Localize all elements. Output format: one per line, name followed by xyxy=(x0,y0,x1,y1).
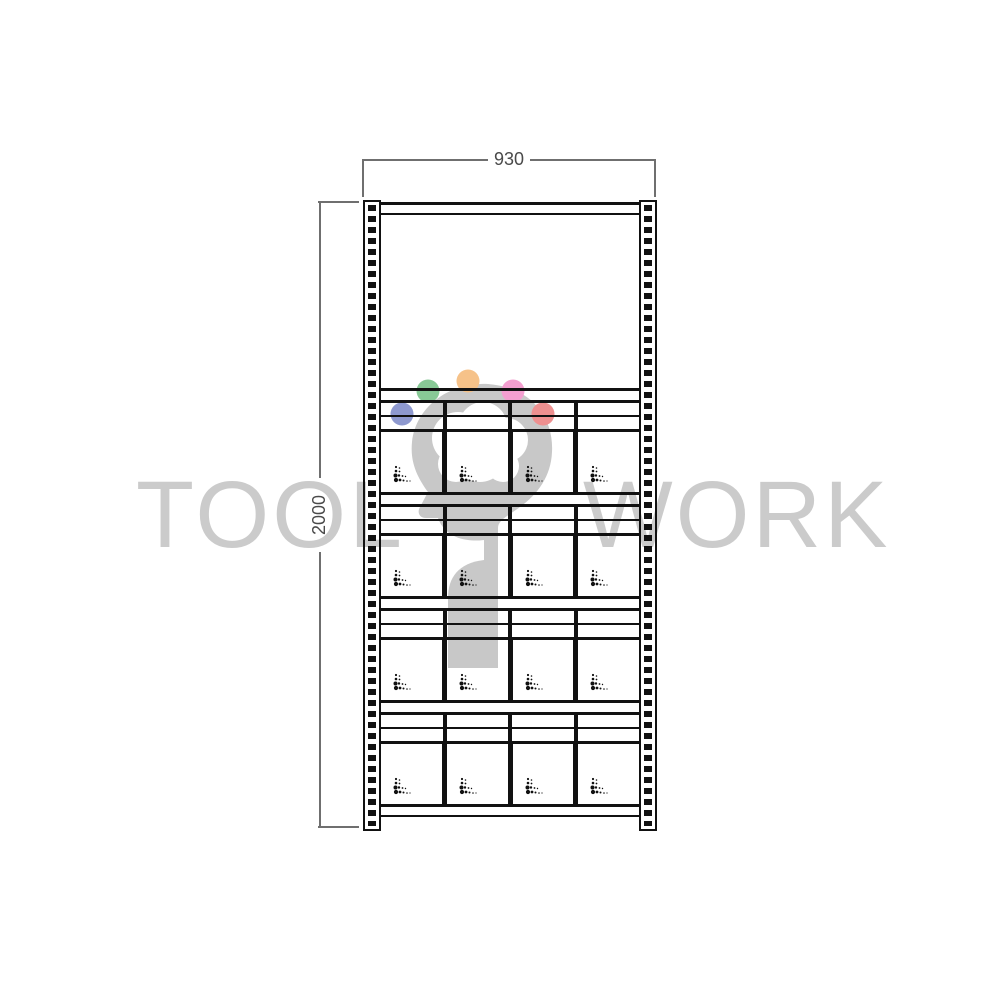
rail-cell xyxy=(578,507,640,519)
scatter-dots-mark-icon xyxy=(393,673,415,691)
rail-cell xyxy=(447,403,509,415)
storage-bin xyxy=(578,536,639,596)
scatter-dots-mark-icon xyxy=(525,777,547,795)
storage-bin xyxy=(381,640,442,700)
rail-row xyxy=(381,729,639,741)
bins-row xyxy=(381,640,639,700)
rail-cell xyxy=(381,611,443,623)
rail-cell xyxy=(381,403,443,415)
upright-holes-pattern xyxy=(368,205,376,826)
rail-cell xyxy=(578,715,640,727)
storage-bin xyxy=(447,536,508,596)
rail-cell xyxy=(447,715,509,727)
storage-bin xyxy=(578,640,639,700)
width-extension-line-right xyxy=(654,159,656,197)
rail-cell xyxy=(512,625,574,637)
height-dimension-line-bottom-segment xyxy=(319,552,321,828)
rail-strip xyxy=(381,715,639,744)
storage-bin xyxy=(513,536,574,596)
storage-bin xyxy=(447,744,508,804)
rail-row xyxy=(381,403,639,415)
upright-holes-pattern xyxy=(644,205,652,826)
perforated-upright-right xyxy=(639,200,657,831)
shelf-beam xyxy=(381,596,639,611)
scatter-dots-mark-icon xyxy=(393,777,415,795)
rail-row xyxy=(381,521,639,533)
storage-bin xyxy=(513,744,574,804)
height-dimension-label: 2000 xyxy=(310,495,328,535)
rail-cell xyxy=(381,521,443,533)
storage-bin xyxy=(447,432,508,492)
rail-cell xyxy=(447,521,509,533)
rail-cell xyxy=(512,403,574,415)
rail-cell xyxy=(447,507,509,519)
storage-bin xyxy=(578,432,639,492)
rail-row xyxy=(381,417,639,429)
shelf-beam xyxy=(381,388,639,403)
storage-bin xyxy=(513,640,574,700)
shelving-unit xyxy=(363,200,657,831)
scatter-dots-mark-icon xyxy=(590,673,612,691)
rail-cell xyxy=(512,729,574,741)
rail-strip xyxy=(381,403,639,432)
rail-cell xyxy=(512,715,574,727)
scatter-dots-mark-icon xyxy=(393,465,415,483)
bins-row xyxy=(381,432,639,492)
scatter-dots-mark-icon xyxy=(459,673,481,691)
rail-cell xyxy=(381,507,443,519)
storage-bin xyxy=(447,640,508,700)
width-dimension-line-left-segment xyxy=(363,159,488,161)
scatter-dots-mark-icon xyxy=(459,465,481,483)
scatter-dots-mark-icon xyxy=(525,673,547,691)
shelf-beam xyxy=(381,492,639,507)
rail-cell xyxy=(512,521,574,533)
unit-interior xyxy=(381,200,639,818)
rail-cell xyxy=(578,611,640,623)
scatter-dots-mark-icon xyxy=(525,465,547,483)
perforated-upright-left xyxy=(363,200,381,831)
bins-row xyxy=(381,744,639,804)
rail-cell xyxy=(381,715,443,727)
rail-cell xyxy=(381,417,443,429)
scatter-dots-mark-icon xyxy=(590,569,612,587)
rail-cell xyxy=(578,417,640,429)
open-compartment xyxy=(381,215,639,388)
rail-cell xyxy=(381,625,443,637)
rail-strip xyxy=(381,611,639,640)
height-dimension-line-top-segment xyxy=(319,202,321,478)
rail-row xyxy=(381,611,639,623)
storage-bin xyxy=(381,432,442,492)
rail-cell xyxy=(578,729,640,741)
rail-row xyxy=(381,507,639,519)
storage-bin xyxy=(578,744,639,804)
scatter-dots-mark-icon xyxy=(525,569,547,587)
bottom-shelf xyxy=(381,804,639,817)
storage-bin xyxy=(381,744,442,804)
rail-cell xyxy=(447,417,509,429)
storage-bin xyxy=(513,432,574,492)
rail-row xyxy=(381,715,639,727)
rail-cell xyxy=(578,403,640,415)
height-extension-line-top xyxy=(318,201,359,203)
width-extension-line-left xyxy=(362,159,364,197)
rail-cell xyxy=(512,611,574,623)
rail-cell xyxy=(512,417,574,429)
top-beam xyxy=(381,202,639,215)
shelf-modules xyxy=(381,388,639,804)
height-extension-line-bottom xyxy=(318,826,359,828)
scatter-dots-mark-icon xyxy=(459,777,481,795)
rail-cell xyxy=(381,729,443,741)
scatter-dots-mark-icon xyxy=(590,777,612,795)
width-dimension-label: 930 xyxy=(494,150,524,168)
rail-cell xyxy=(447,729,509,741)
bins-row xyxy=(381,536,639,596)
shelf-beam xyxy=(381,700,639,715)
rail-cell xyxy=(512,507,574,519)
rail-row xyxy=(381,625,639,637)
scatter-dots-mark-icon xyxy=(393,569,415,587)
rail-cell xyxy=(447,611,509,623)
scatter-dots-mark-icon xyxy=(459,569,481,587)
storage-bin xyxy=(381,536,442,596)
technical-drawing-page: { "drawing": { "type": "shelving-unit-fr… xyxy=(0,0,1000,1000)
rail-strip xyxy=(381,507,639,536)
scatter-dots-mark-icon xyxy=(590,465,612,483)
rail-cell xyxy=(578,625,640,637)
rail-cell xyxy=(447,625,509,637)
rail-cell xyxy=(578,521,640,533)
width-dimension-line-right-segment xyxy=(530,159,655,161)
